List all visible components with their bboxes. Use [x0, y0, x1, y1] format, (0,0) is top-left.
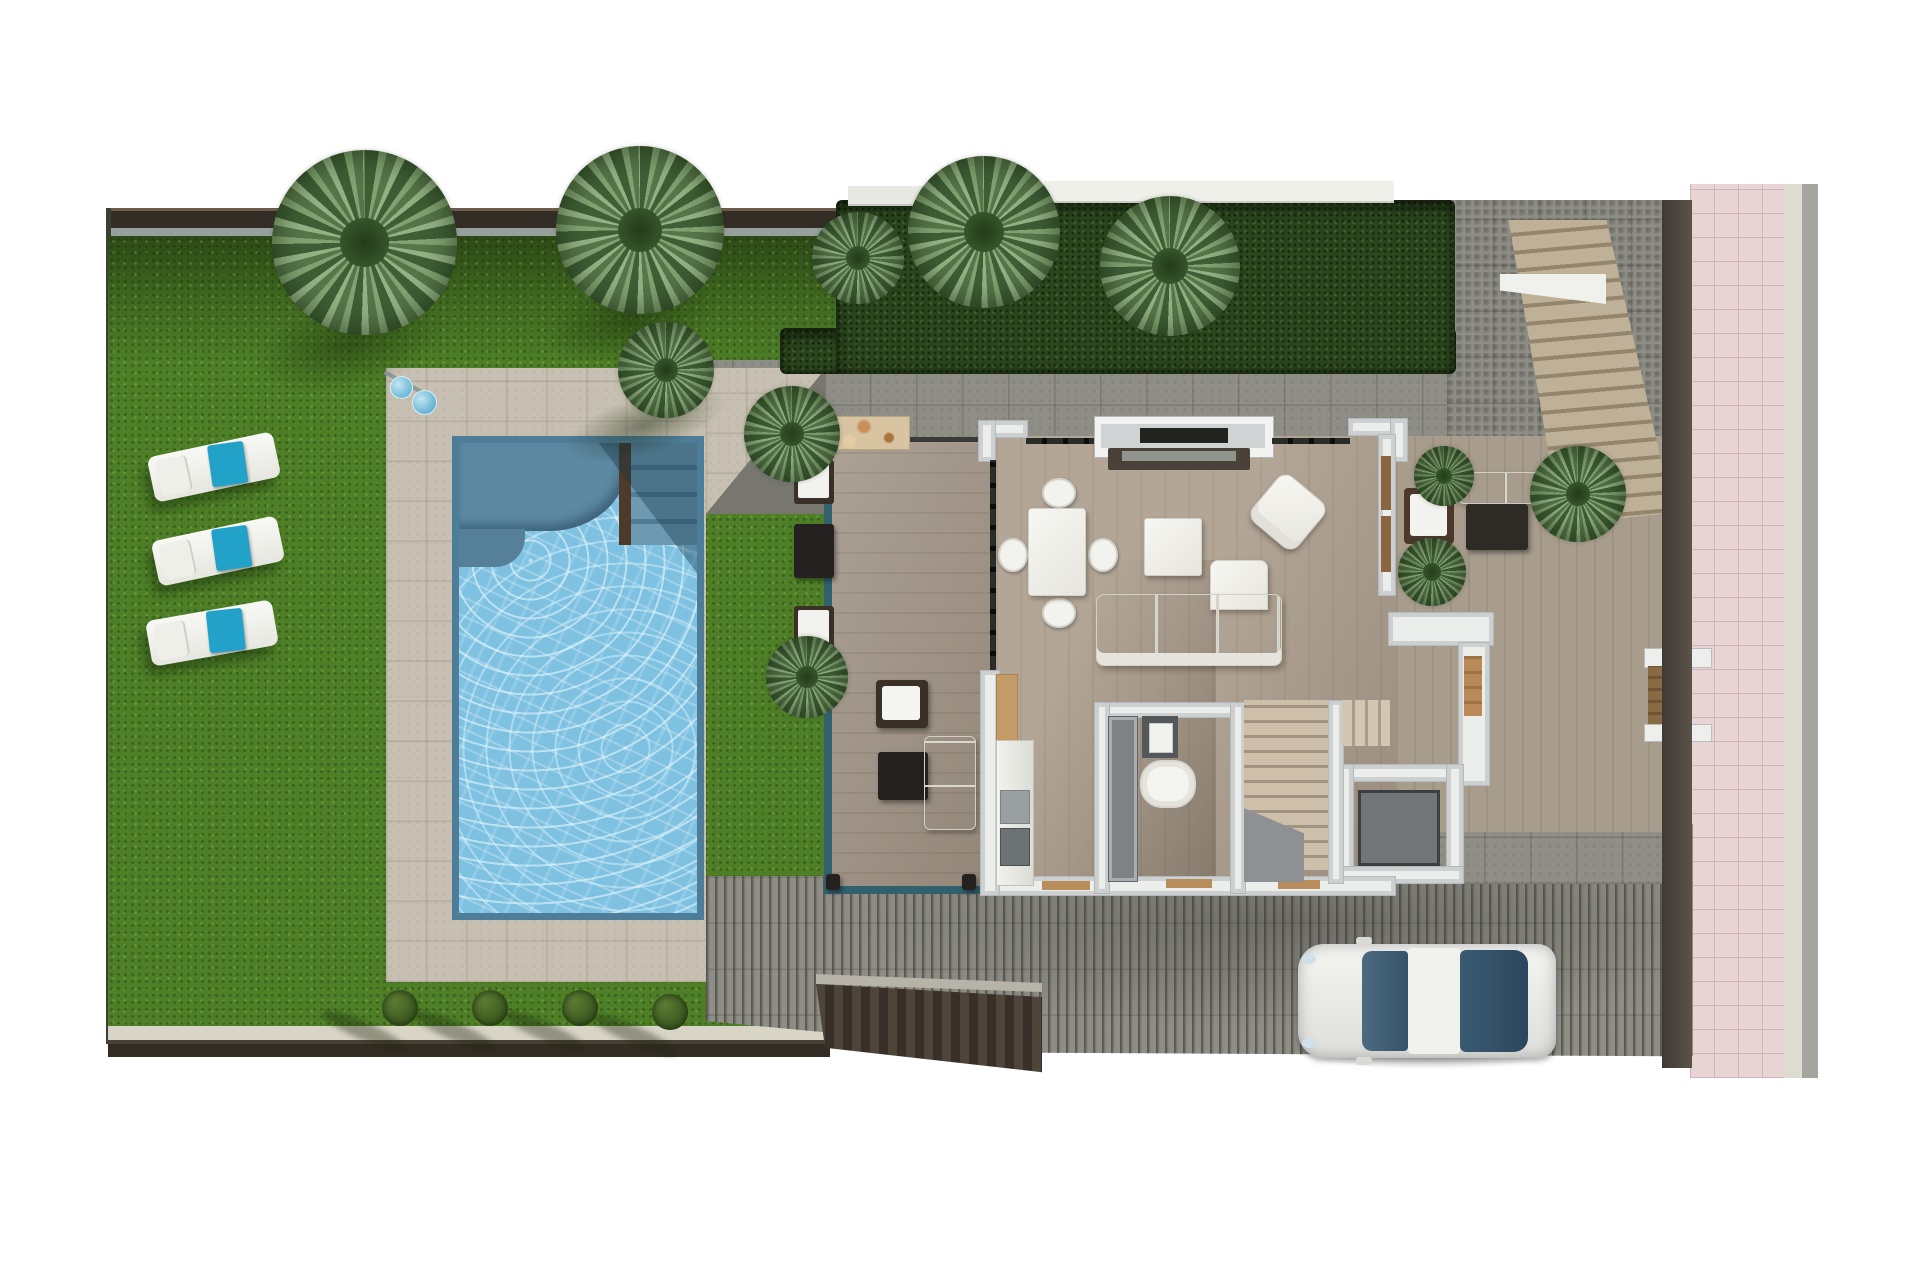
car-windshield	[1362, 951, 1408, 1051]
garden-bush	[652, 994, 688, 1030]
bathroom-sink-basin	[1149, 723, 1173, 753]
storage-unit	[1358, 790, 1440, 866]
dining-chair	[1088, 538, 1118, 572]
palm-tree	[1100, 196, 1240, 336]
car	[1298, 944, 1556, 1058]
deck-plant-pot	[962, 874, 976, 890]
palm-tree-patio	[618, 322, 714, 418]
kitchen-stove	[1000, 828, 1030, 866]
coffee-table	[1144, 518, 1202, 576]
street-curb	[1784, 184, 1802, 1078]
car-headlight	[1302, 1038, 1316, 1048]
shower-enclosure	[1108, 716, 1138, 882]
floor-plan-canvas	[0, 0, 1920, 1280]
lounger-towel	[206, 608, 246, 654]
poolside-table-black	[794, 524, 834, 578]
deck-armchair	[876, 680, 928, 728]
dining-table	[1028, 508, 1086, 596]
wall-entry-h	[1388, 612, 1494, 646]
outdoor-shower-head-1	[390, 376, 413, 399]
bathtub	[1140, 760, 1196, 808]
sofa-main	[1096, 594, 1282, 666]
car-roof	[1408, 948, 1460, 1054]
tv-cabinet-shelf	[1122, 451, 1236, 461]
palm-tree-courtyard	[1398, 538, 1466, 606]
swimming-pool	[452, 436, 704, 920]
dining-chair	[1042, 598, 1076, 628]
garden-bush	[472, 990, 508, 1026]
dining-chair	[1042, 478, 1076, 508]
door-sill-1	[1042, 881, 1090, 890]
window-wood-right-2	[1381, 516, 1391, 572]
sidewalk-pink	[1690, 184, 1784, 1078]
front-door-wood	[1464, 656, 1482, 716]
palm-tree-courtyard	[1530, 446, 1626, 542]
palm-tree	[908, 156, 1060, 308]
palm-tree-courtyard	[1414, 446, 1474, 506]
courtyard-coffee-table	[1466, 504, 1528, 550]
sliding-window-top-2	[1272, 438, 1350, 444]
palm-tree-deck-bottom	[766, 636, 848, 718]
car-rear-window	[1460, 950, 1528, 1052]
boundary-wall-right-dark	[1662, 200, 1692, 1068]
car-headlight	[1302, 954, 1316, 964]
window-wood-right-1	[1381, 456, 1391, 510]
storage-wall-top	[1338, 764, 1462, 782]
roof-slab-2	[1044, 181, 1394, 203]
deck-armchair-cushion	[882, 686, 920, 720]
car-mirror	[1356, 937, 1372, 945]
pool-bench-step	[459, 529, 525, 567]
perimeter-wall-top	[108, 208, 852, 228]
palm-tree	[812, 212, 904, 304]
palm-tree	[556, 146, 724, 314]
garden-bush	[562, 990, 598, 1026]
wall-top-left-v	[978, 420, 996, 462]
kitchen-sink	[1000, 790, 1030, 824]
entry-steps	[1342, 700, 1390, 746]
garden-bush	[382, 990, 418, 1026]
lounger-towel	[211, 525, 252, 572]
sliding-door-left	[990, 460, 996, 672]
deck-sofa	[924, 736, 976, 830]
palm-tree-deck-top	[744, 386, 840, 482]
car-mirror	[1356, 1057, 1372, 1065]
palm-tree	[272, 150, 457, 335]
road-strip	[1802, 184, 1818, 1078]
driveway-ramp	[816, 982, 1042, 1076]
door-sill-2	[1166, 879, 1212, 888]
deck-plant-pot	[826, 874, 840, 890]
tv-screen	[1140, 428, 1228, 443]
deck-coffee-table	[878, 752, 928, 800]
outdoor-shower-head-2	[412, 390, 437, 415]
lounger-towel	[207, 441, 248, 488]
dining-chair	[998, 538, 1028, 572]
sliding-door-top-1	[1026, 438, 1096, 444]
